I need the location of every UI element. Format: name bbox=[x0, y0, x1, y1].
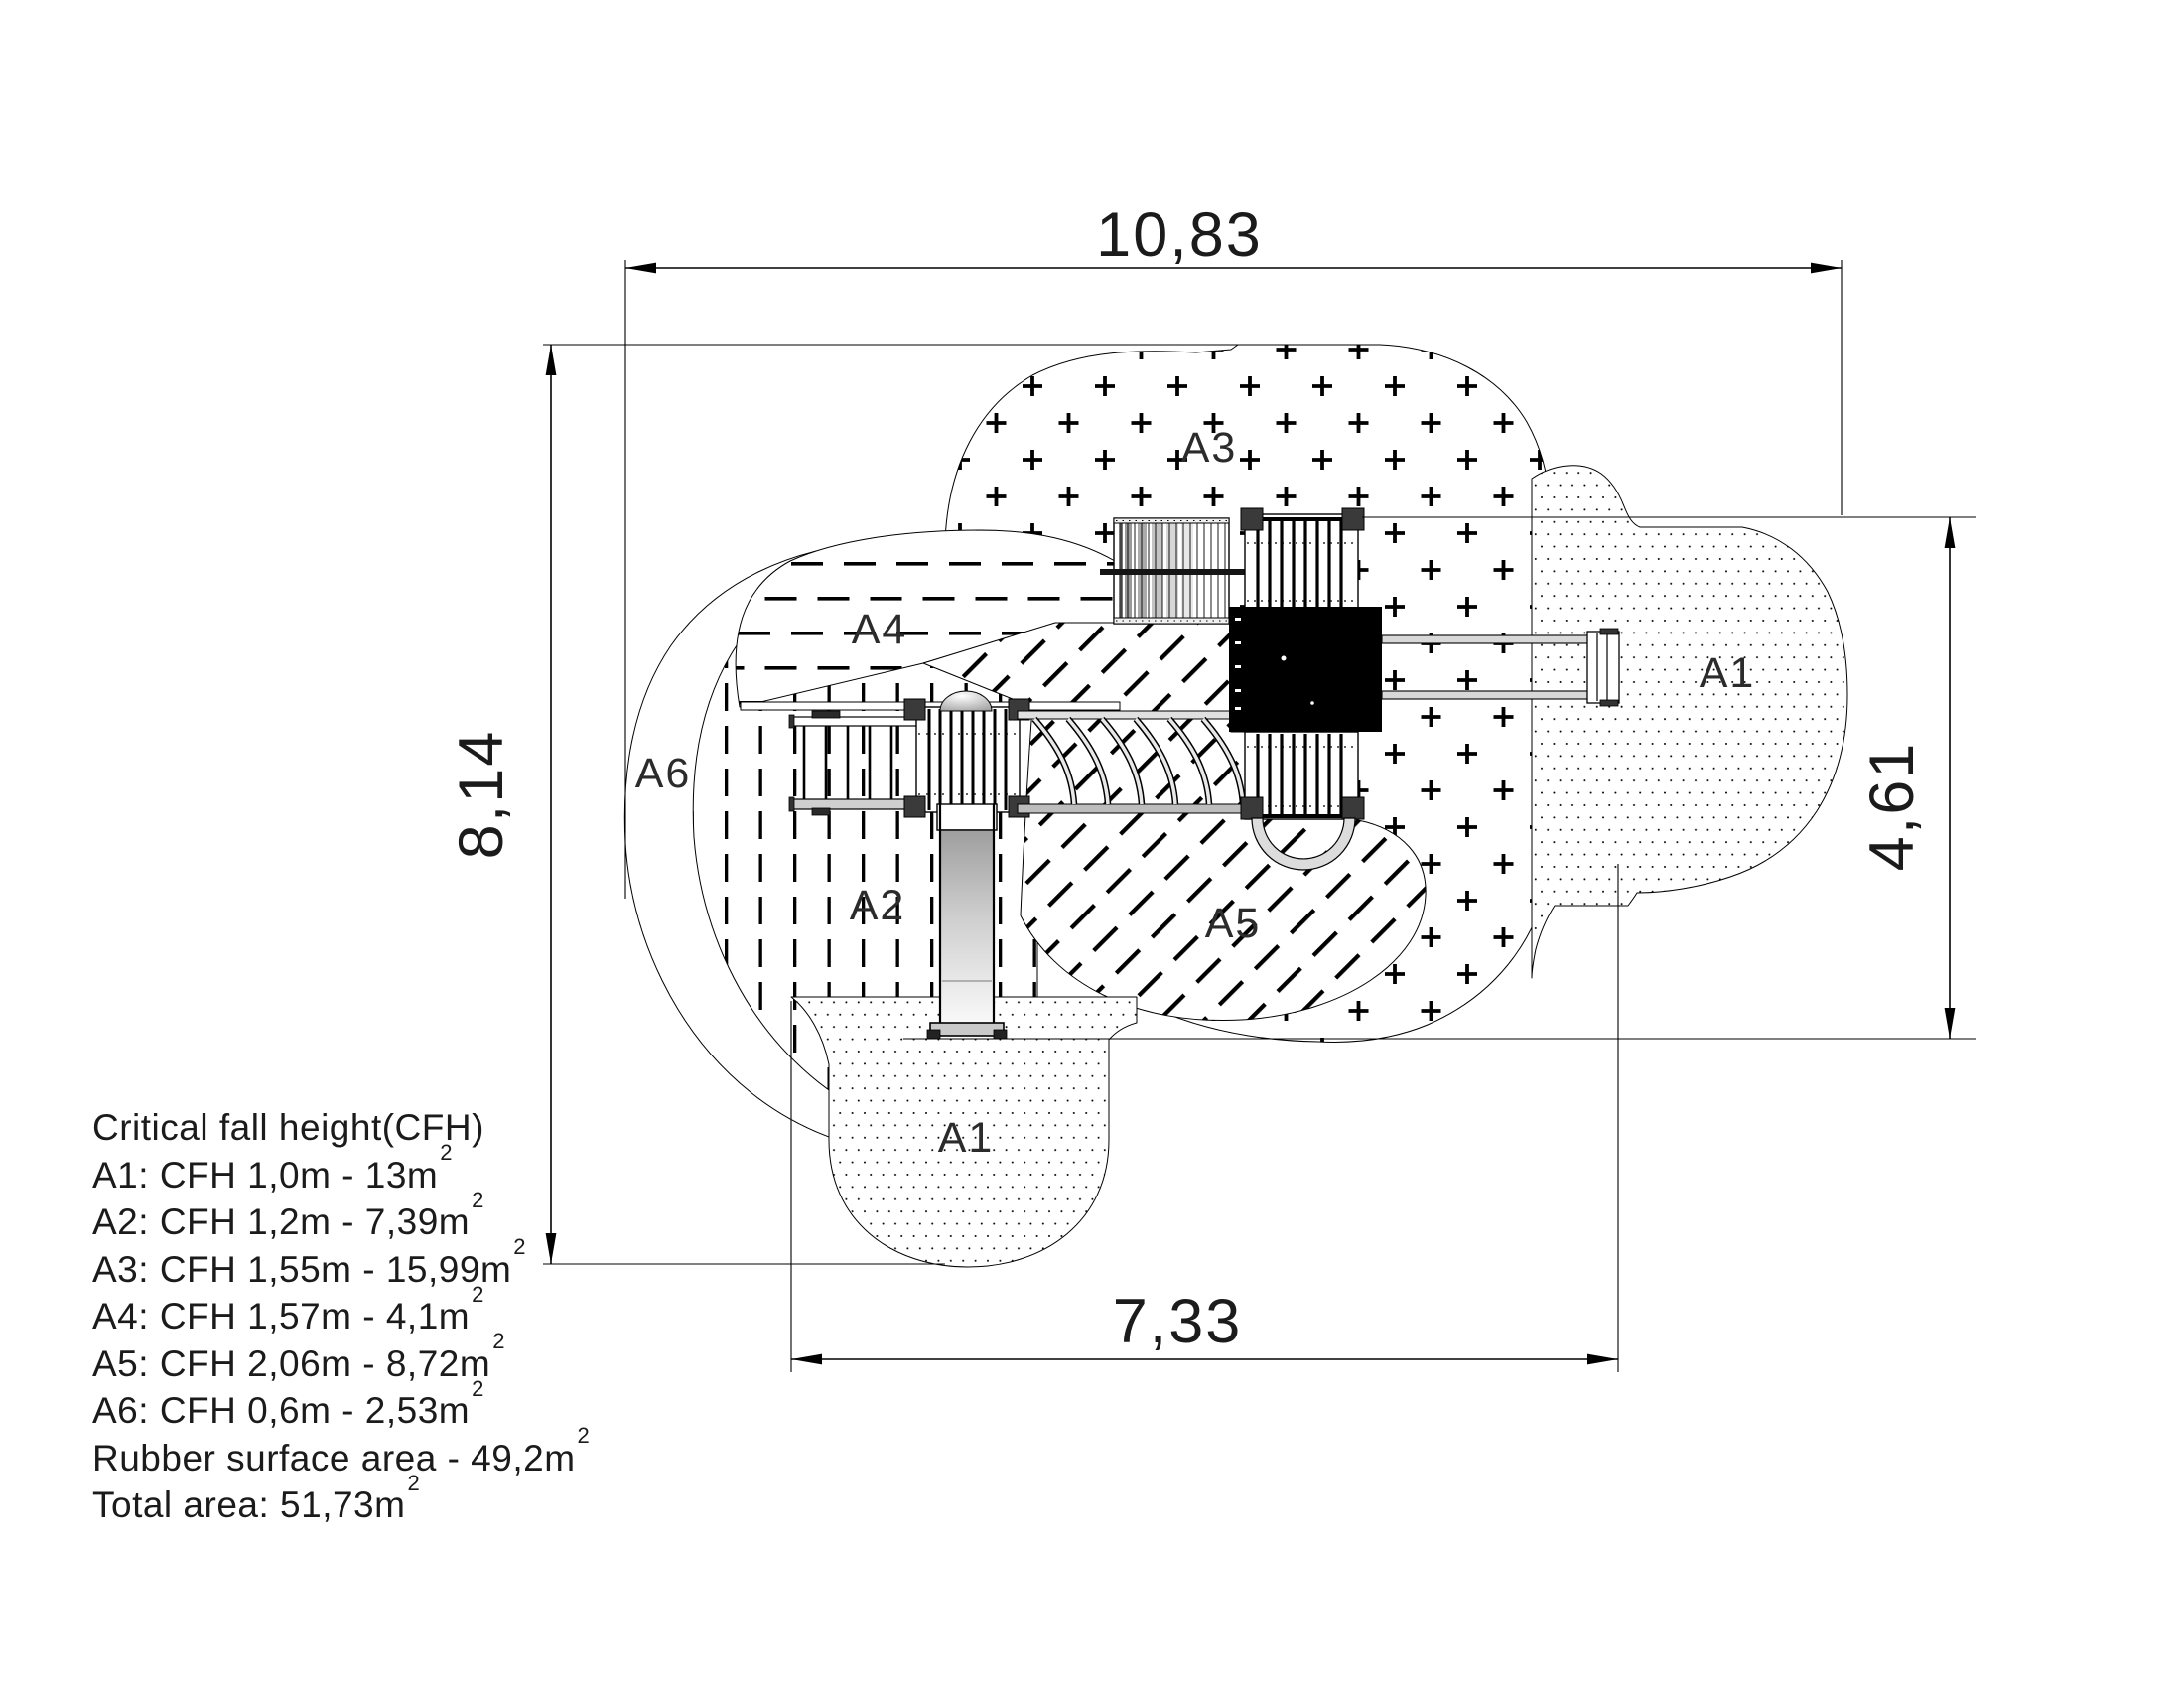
legend-item-a6: A6: CFH 0,6m - 2,53m2 bbox=[92, 1387, 588, 1435]
legend-item-a5: A5: CFH 2,06m - 8,72m2 bbox=[92, 1340, 588, 1388]
playground-plan-sheet: 10,83 8,14 4,61 7,33 bbox=[0, 0, 2184, 1688]
legend-item-a1: A1: CFH 1,0m - 13m2 bbox=[92, 1152, 588, 1199]
area-label-a1-bottom: A1 bbox=[938, 1114, 995, 1162]
area-label-a1-right: A1 bbox=[1700, 649, 1756, 697]
dim-height-right-value: 4,61 bbox=[1857, 742, 1927, 872]
tower-roof bbox=[1229, 607, 1382, 732]
area-label-a3: A3 bbox=[1181, 424, 1238, 472]
grab-bar bbox=[1100, 569, 1261, 575]
area-label-a2: A2 bbox=[850, 882, 906, 929]
dim-height-total-value: 8,14 bbox=[447, 730, 516, 860]
dim-width-total-value: 10,83 bbox=[1096, 201, 1263, 270]
lower-slide bbox=[927, 804, 1007, 1039]
legend-item-total-area: Total area: 51,73m2 bbox=[92, 1481, 588, 1529]
lower-deck bbox=[1241, 732, 1364, 819]
legend-title: Critical fall height(CFH) bbox=[92, 1104, 588, 1152]
zone-a1-right bbox=[1532, 466, 1847, 978]
area-label-a6: A6 bbox=[635, 750, 692, 797]
legend-item-a3: A3: CFH 1,55m - 15,99m2 bbox=[92, 1246, 588, 1294]
area-label-a4: A4 bbox=[852, 606, 908, 653]
dim-width-bottom-value: 7,33 bbox=[1113, 1287, 1243, 1356]
upper-deck bbox=[1241, 508, 1364, 609]
legend-item-rubber-area: Rubber surface area - 49,2m2 bbox=[92, 1435, 588, 1482]
area-label-a5: A5 bbox=[1205, 900, 1262, 947]
left-deck bbox=[904, 699, 1029, 817]
legend-item-a4: A4: CFH 1,57m - 4,1m2 bbox=[92, 1293, 588, 1340]
cfh-legend: Critical fall height(CFH) A1: CFH 1,0m -… bbox=[92, 1104, 588, 1529]
